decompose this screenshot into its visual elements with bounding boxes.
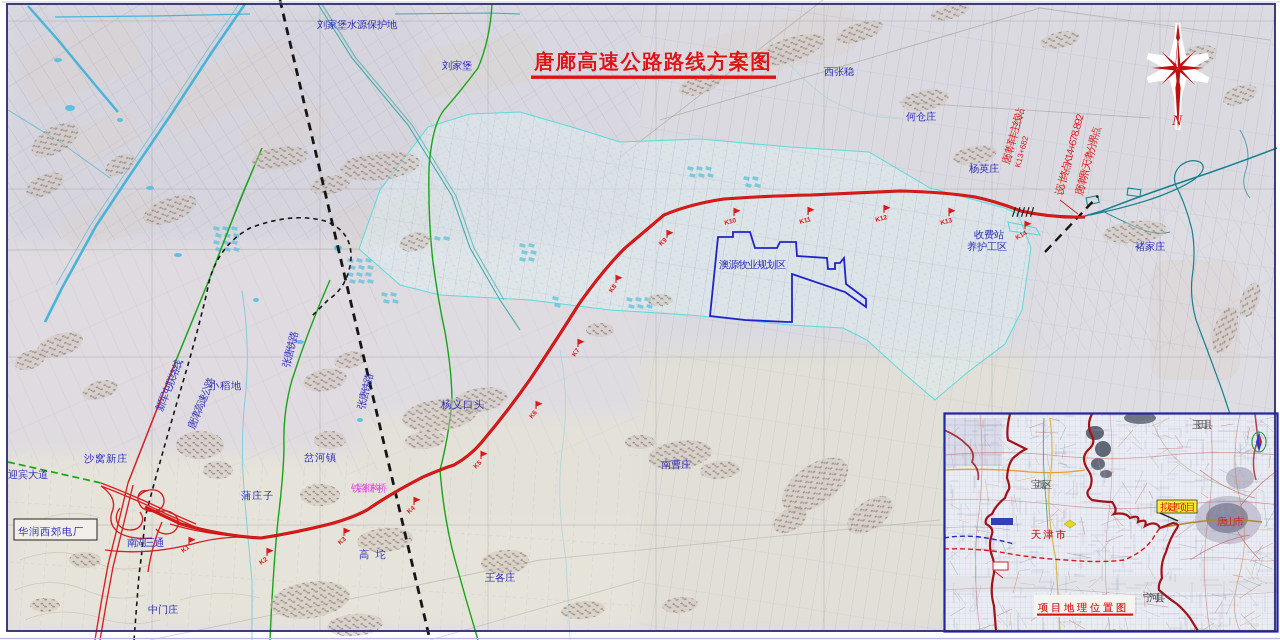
svg-text:N: N <box>1171 113 1183 129</box>
